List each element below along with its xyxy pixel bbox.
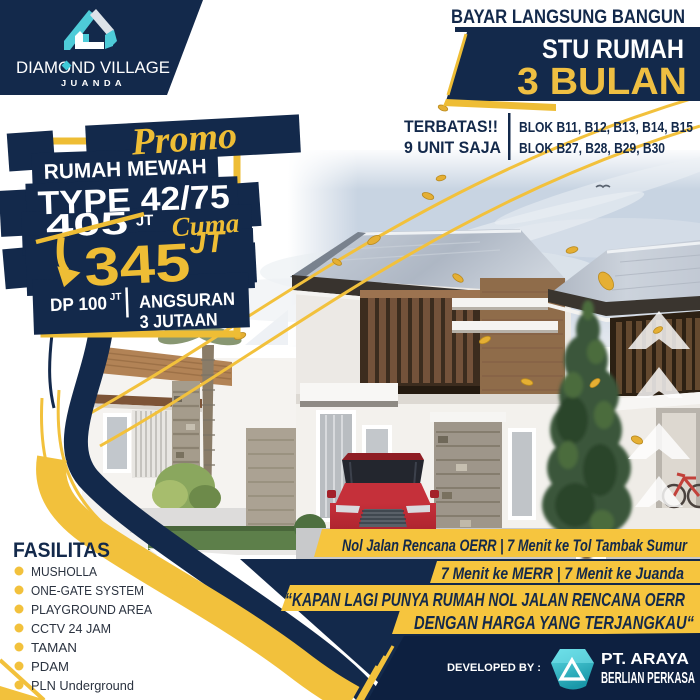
- svg-text:PLN Underground: PLN Underground: [31, 678, 134, 693]
- svg-text:PDAM: PDAM: [31, 659, 69, 674]
- svg-text:DIAMOND VILLAGE: DIAMOND VILLAGE: [16, 58, 170, 77]
- svg-text:ANGSURAN: ANGSURAN: [139, 289, 236, 312]
- svg-text:TERBATAS!!: TERBATAS!!: [404, 117, 498, 136]
- svg-text:ONE-GATE SYSTEM: ONE-GATE SYSTEM: [31, 583, 144, 598]
- svg-text:3 JUTAAN: 3 JUTAAN: [139, 309, 218, 332]
- svg-text:9 UNIT SAJA: 9 UNIT SAJA: [404, 138, 501, 157]
- svg-text:MUSHOLLA: MUSHOLLA: [31, 564, 97, 579]
- svg-text:7 Menit ke MERR | 7 Menit ke J: 7 Menit ke MERR | 7 Menit ke Juanda: [441, 564, 684, 583]
- svg-text:CCTV 24 JAM: CCTV 24 JAM: [31, 621, 111, 636]
- svg-text:345: 345: [83, 232, 192, 297]
- svg-text:PT. ARAYA: PT. ARAYA: [601, 651, 689, 668]
- svg-text:BERLIAN PERKASA: BERLIAN PERKASA: [601, 670, 695, 687]
- svg-text:“KAPAN LAGI PUNYA RUMAH NOL JA: “KAPAN LAGI PUNYA RUMAH NOL JALAN RENCAN…: [285, 590, 685, 610]
- svg-text:TAMAN: TAMAN: [31, 640, 77, 655]
- svg-text:JT: JT: [188, 225, 227, 260]
- svg-text:BLOK B11, B12, B13, B14, B15: BLOK B11, B12, B13, B14, B15: [519, 119, 693, 136]
- svg-text:JUANDA: JUANDA: [61, 78, 126, 88]
- svg-text:DENGAN HARGA YANG TERJANGKAU“: DENGAN HARGA YANG TERJANGKAU“: [414, 613, 694, 633]
- svg-text:DEVELOPED BY :: DEVELOPED BY :: [447, 662, 541, 674]
- svg-text:FASILITAS: FASILITAS: [13, 539, 110, 562]
- svg-text:3 BULAN: 3 BULAN: [517, 61, 687, 103]
- svg-text:BLOK B27, B28, B29, B30: BLOK B27, B28, B29, B30: [519, 140, 665, 157]
- svg-text:Nol Jalan Rencana OERR | 7 Men: Nol Jalan Rencana OERR | 7 Menit ke Tol …: [342, 536, 688, 555]
- svg-text:BAYAR LANGSUNG BANGUN: BAYAR LANGSUNG BANGUN: [451, 7, 685, 28]
- svg-text:PLAYGROUND AREA: PLAYGROUND AREA: [31, 602, 152, 617]
- svg-text:DP 100: DP 100: [50, 293, 108, 315]
- svg-text:JT: JT: [110, 292, 122, 303]
- svg-text:STU RUMAH: STU RUMAH: [542, 34, 684, 64]
